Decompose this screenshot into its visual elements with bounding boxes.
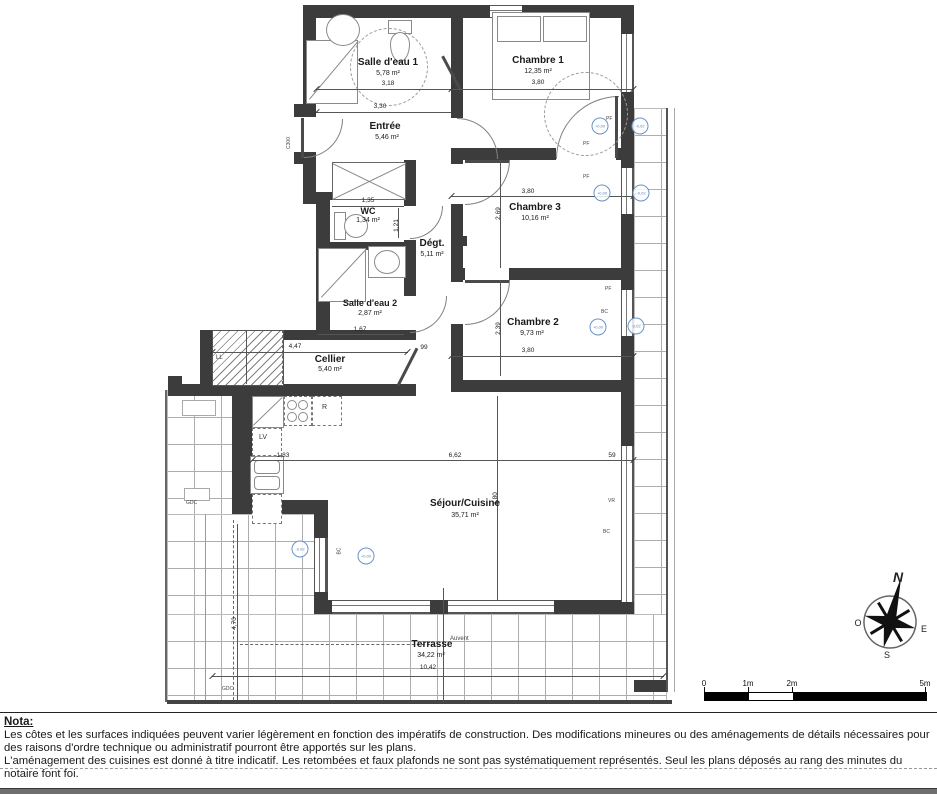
wall-sejour-bottom-a (314, 600, 332, 614)
kitchen-fridge-box (312, 396, 342, 426)
room-label-sde2: Salle d'eau 2 (343, 298, 397, 308)
compass-rose: N O E S (850, 568, 930, 660)
terrace-left-edge (165, 390, 167, 702)
corner-unit-diagonal (253, 397, 282, 426)
wall-balcony-bottom-stub (634, 680, 666, 692)
chambre3-door-arc (465, 160, 510, 205)
gdc-label-1: GDC (186, 500, 197, 506)
wall-kitchen-left (232, 390, 252, 508)
sde2-door-arc (410, 296, 447, 333)
auvent-dashed-v (233, 520, 235, 700)
floor-plan-page: Salle d'eau 1 5,78 m² 3,18 Chambre 1 12,… (0, 0, 937, 800)
vr-label: VR (608, 498, 615, 504)
wall-ch3-ch2-b (509, 268, 634, 280)
wall-cellier-left (200, 330, 212, 392)
footer-bar (0, 788, 937, 794)
room-label-chambre1: Chambre 1 (512, 55, 564, 66)
wall-entry-stub-top (294, 104, 316, 117)
dim-line-sde2 (318, 334, 404, 335)
kitchen-sink-unit (250, 456, 284, 494)
entry-door-code: C300 (286, 137, 292, 149)
scale-bar-white-segment (749, 693, 793, 700)
wall-left-mid-a (303, 152, 316, 204)
cellier-hatch-dashed-edge (282, 330, 284, 384)
level-marker: -0,02 (633, 185, 650, 202)
wall-sejour-left-a (314, 514, 328, 538)
dim-line-cellier (212, 352, 408, 353)
entry-door-leaf (301, 118, 304, 158)
room-area-chambre2: 9,73 m² (520, 330, 544, 337)
scale-bar-body (704, 692, 927, 701)
dim-ch3-h: 2,69 (495, 207, 502, 220)
kitchen-appliance-box (252, 494, 282, 524)
level-marker: +0,00 (594, 185, 611, 202)
nota-paragraph-1: Les côtes et les surfaces indiquées peuv… (4, 729, 933, 755)
room-label-wc: WC (361, 206, 376, 216)
bed-pillow-1 (497, 16, 541, 42)
dim-line-terrace-left-v (237, 524, 238, 700)
level-marker: +0,00 (590, 319, 607, 336)
dim-entree-w: 3,30 (374, 103, 387, 110)
sink-bowl-2 (254, 476, 280, 490)
bc-label-1: BC (603, 529, 610, 535)
room-area-chambre3: 10,16 m² (521, 215, 549, 222)
room-label-terrasse: Terrasse (412, 639, 453, 650)
room-area-terrasse: 34,22 m² (417, 652, 445, 659)
compass-north-label: N (893, 569, 904, 585)
room-area-chambre1: 12,35 m² (524, 68, 552, 75)
shower2-diagonal (321, 249, 367, 298)
level-marker: -0,02 (292, 541, 309, 558)
dim-ch3-w: 3,80 (522, 188, 535, 195)
pf-label-1: PF (583, 141, 589, 147)
dim-ch2-w: 3,80 (522, 347, 535, 354)
neighbor-utility-box-1 (182, 400, 216, 416)
balcony-outer-line2 (674, 108, 675, 692)
nota-title: Nota: (4, 716, 33, 728)
balcony-outer-line (666, 108, 668, 692)
chambre3-door-leaf (465, 160, 509, 163)
wall-ch3-ch2-a (451, 268, 465, 280)
room-label-entree: Entrée (369, 121, 400, 132)
wall-sejour-bottom-c (554, 600, 634, 614)
nota-bottom-dashed-rule (0, 768, 937, 770)
compass-south-label: S (884, 650, 890, 660)
nota-top-rule (0, 712, 937, 713)
room-label-cellier: Cellier (315, 354, 346, 365)
bc-label-3: BC (601, 309, 608, 315)
chambre2-door-arc (465, 280, 510, 325)
auvent-label: Auvent (450, 636, 469, 642)
dim-line-terrasse (212, 676, 664, 677)
dim-degt: 99 (420, 344, 427, 351)
dim-ch2-h: 2,39 (495, 322, 502, 335)
wall-cellier-bottom (168, 384, 416, 396)
washer-label: LL (216, 355, 223, 361)
neighbor-boundary-line (205, 514, 206, 700)
dim-sde1-w: 3,18 (382, 80, 395, 87)
dim-sde2-w: 1,67 (354, 326, 367, 333)
level-marker: +0,00 (358, 548, 375, 565)
room-area-sde1: 5,78 m² (376, 70, 400, 77)
room-area-entree: 5,46 m² (375, 134, 399, 141)
compass-east-label: E (921, 624, 927, 634)
sink-sde2-basin (374, 250, 400, 274)
level-marker: +0,00 (592, 118, 609, 135)
entree-closet (332, 162, 406, 200)
dim-wc-h: 1,21 (393, 219, 400, 232)
scale-bar: 0 1m 2m 5m (700, 679, 930, 701)
window-sejour-bay1 (332, 600, 430, 614)
wall-ch2-bottom (451, 380, 634, 392)
kitchen-cooktop (284, 396, 312, 426)
dim-sejour-h: 4,80 (492, 492, 499, 505)
shower-sde2 (318, 248, 366, 302)
dim-ch1-w: 3,80 (532, 79, 545, 86)
bed-pillow-2 (543, 16, 587, 42)
room-area-sde2: 2,87 m² (358, 310, 382, 317)
room-area-sejour: 35,71 m² (451, 512, 479, 519)
room-area-cellier: 5,40 m² (318, 366, 342, 373)
dim-kitchen-w: 1,83 (277, 452, 290, 459)
kitchen-corner-unit (252, 396, 284, 428)
compass-west-label: O (854, 618, 861, 628)
level-marker: -0,02 (628, 318, 645, 335)
burner-1 (287, 400, 297, 410)
room-area-wc: 1,34 m² (356, 217, 380, 224)
window-chambre1 (621, 34, 634, 92)
fridge-label: R (322, 404, 327, 411)
burner-2 (298, 400, 308, 410)
room-label-sejour: Séjour/Cuisine (430, 498, 500, 509)
dim-line-entree (316, 112, 451, 113)
dim-cellier-w: 4,47 (289, 343, 302, 350)
entry-door-arc (304, 119, 343, 158)
room-area-degt: 5,11 m² (420, 251, 443, 258)
dim-line-top (316, 89, 634, 90)
auvent-dashed-h (240, 644, 440, 646)
dim-wc-w: 1,35 (362, 197, 375, 204)
entree-degt-door-arc (457, 118, 498, 159)
pf-label-2: PF (583, 174, 589, 180)
room-label-degt: Dégt. (420, 238, 445, 249)
burner-4 (298, 412, 308, 422)
chambre2-door-leaf (465, 280, 509, 283)
level-marker: -0,02 (632, 118, 649, 135)
dim-terrasse-w: 10,42 (420, 664, 436, 671)
cellier-door-leaf (397, 348, 419, 387)
terrace-bottom-edge (167, 700, 672, 704)
wall-ch3-stub (451, 236, 467, 246)
gdc-label-2: GDC (222, 686, 233, 692)
wall-cellier-corner (168, 376, 182, 396)
room-label-chambre3: Chambre 3 (509, 202, 561, 213)
window-sejour-left (314, 538, 328, 592)
dim-terrasse-h: 4,70 (231, 617, 238, 630)
burner-3 (287, 412, 297, 422)
cellier-hatch-divider (246, 330, 247, 384)
window-sejour-right (621, 446, 634, 602)
window-sejour-bay2 (448, 600, 554, 614)
pf-label-3: PF (605, 286, 611, 292)
dim-sejour-e: 59 (608, 452, 615, 459)
dishwasher-label: LV (259, 434, 267, 441)
dim-tick (404, 349, 410, 355)
wc-door-arc (410, 206, 443, 239)
dim-line-ch2 (451, 356, 634, 357)
wall-sejour-bottom-b (430, 600, 448, 614)
dim-sejour-w: 6,62 (449, 452, 462, 459)
sink-bowl-1 (254, 460, 280, 474)
sink-sde1 (326, 14, 360, 46)
room-label-sde1: Salle d'eau 1 (358, 57, 418, 68)
bc-label-2: BC (336, 548, 342, 555)
dim-line-sejour (252, 460, 634, 461)
wall-v1-a (451, 5, 463, 118)
room-label-chambre2: Chambre 2 (507, 317, 559, 328)
